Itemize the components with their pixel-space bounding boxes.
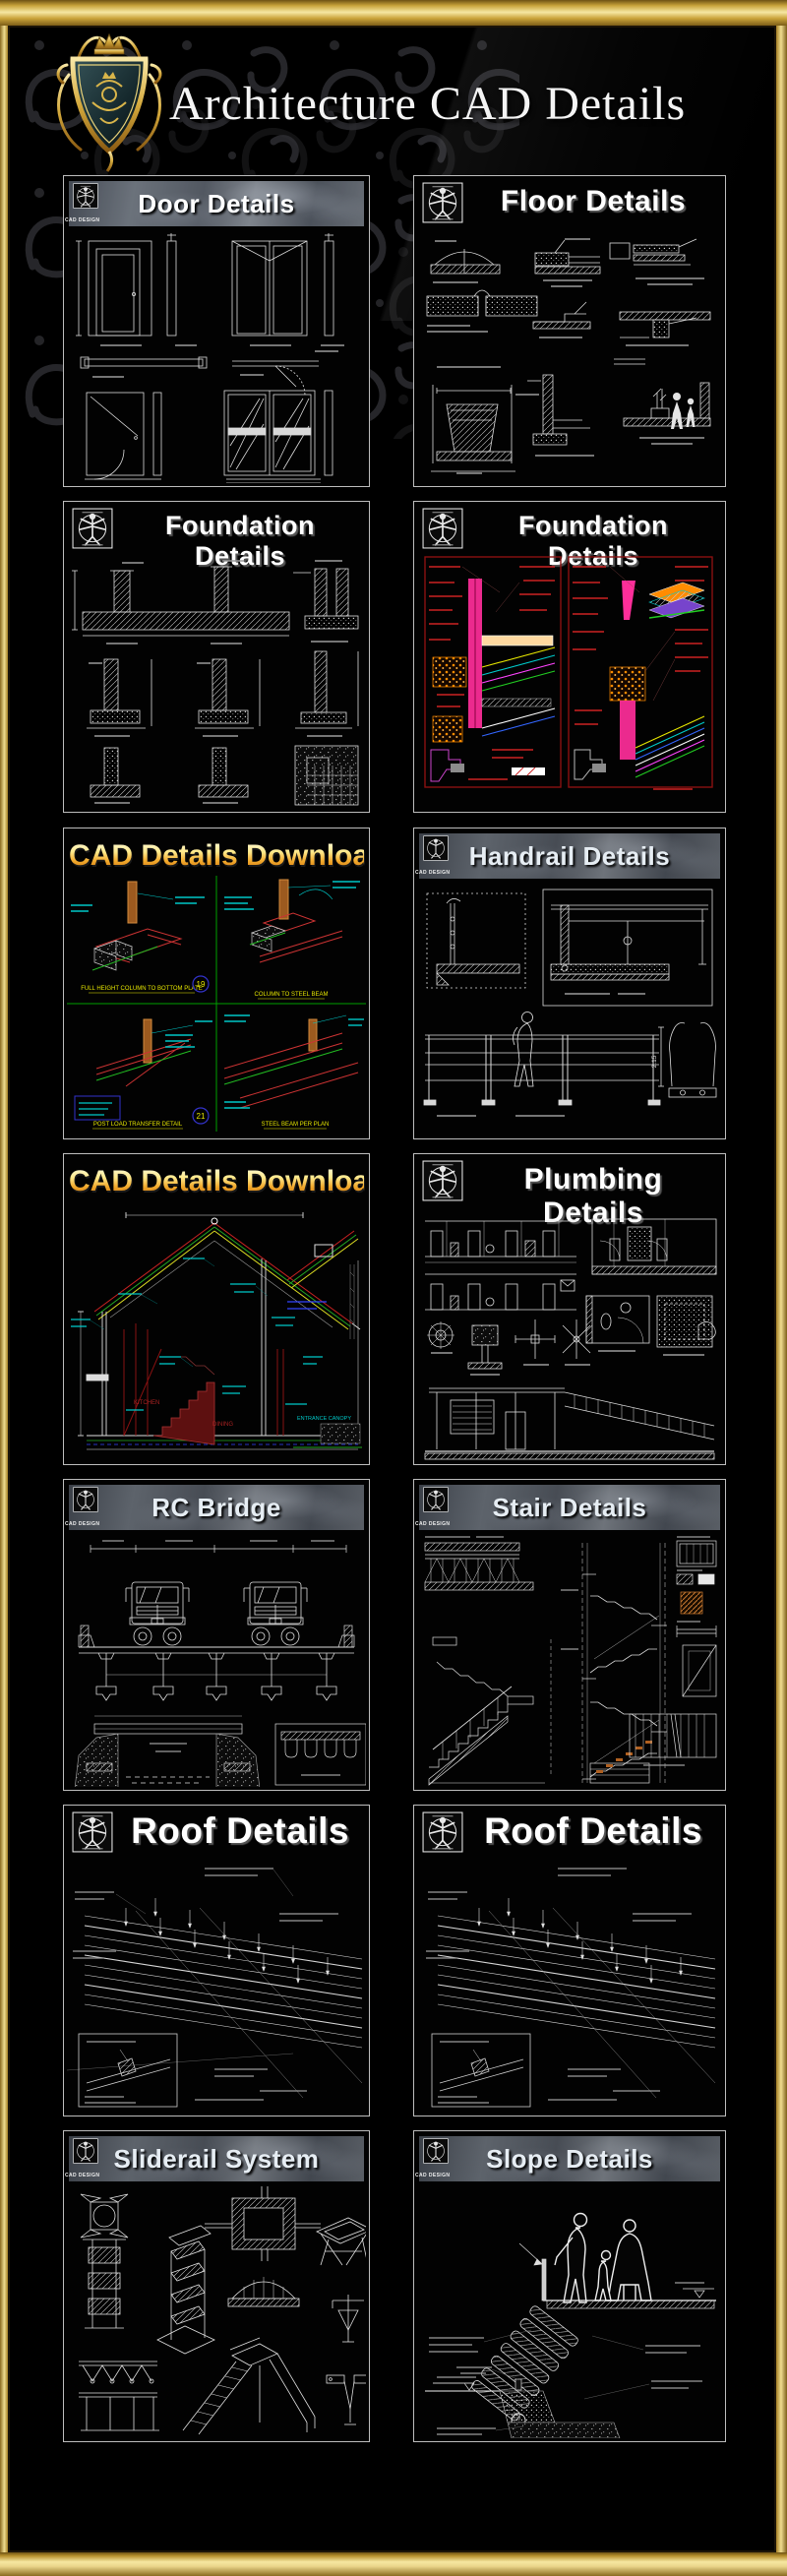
foundation-color-drawing — [417, 553, 722, 809]
panel-cad-details-download-framing: CAD Details Download — [63, 828, 370, 1139]
panel-header: CAD Details Download — [69, 1159, 364, 1204]
family-silhouette — [555, 2214, 651, 2303]
logo-caption: CAD DESIGN — [415, 2173, 460, 2178]
crest-logo-icon — [49, 28, 169, 185]
room-label-kitchen: KITCHEN — [134, 1400, 159, 1406]
panel-header: Door Details — [69, 181, 364, 226]
panel-header: Slope Details — [419, 2136, 720, 2181]
panel-handrail-details: Handrail Details CAD DESIGN — [413, 828, 726, 1139]
masthead: Architecture CAD Details — [8, 26, 776, 175]
panel-floor-details: Floor Details — [413, 175, 726, 487]
fastener-arrows — [125, 1898, 330, 1983]
cad-design-logo-icon — [73, 183, 98, 209]
cad-design-logo-icon — [72, 508, 113, 549]
panel-title: Roof Details — [470, 1810, 716, 1852]
truck-icon — [126, 1582, 189, 1645]
room-label-dining: DINING — [212, 1422, 233, 1428]
panel-title: Roof Details — [120, 1810, 360, 1852]
panel-title: CAD Details Download — [69, 1165, 364, 1198]
cad-design-logo-icon — [423, 2138, 449, 2164]
logo-caption: CAD DESIGN — [65, 1521, 110, 1527]
logo-caption: CAD DESIGN — [65, 217, 110, 223]
panel-title: Stair Details — [419, 1493, 720, 1523]
foundation-details-drawing — [67, 553, 366, 809]
panel-header: Sliderail System — [69, 2136, 364, 2181]
caption-q3: POST LOAD TRANSFER DETAIL — [93, 1122, 183, 1128]
panel-header: RC Bridge — [69, 1485, 364, 1530]
cad-design-logo-icon — [422, 508, 463, 549]
slope-details-drawing — [417, 2182, 722, 2438]
canopy-label: ENTRANCE CANOPY — [297, 1416, 351, 1422]
panel-header: Roof Details — [69, 1810, 364, 1856]
framing-details-drawing: FULL HEIGHT COLUMN TO BOTTOM PLATE COLUM… — [67, 876, 366, 1132]
plumbing-details-drawing — [417, 1205, 722, 1461]
panel-header: Plumbing Details — [419, 1159, 720, 1204]
cad-design-logo-icon — [422, 1160, 463, 1201]
frame-left — [0, 26, 8, 2552]
stair-details-drawing — [417, 1531, 722, 1787]
cad-design-logo-icon — [73, 2138, 98, 2164]
panel-header: Foundation Details — [69, 507, 364, 552]
panel-title: Floor Details — [470, 185, 716, 218]
panel-rc-bridge: RC Bridge CAD DESIGN — [63, 1479, 370, 1791]
cad-design-logo-icon — [422, 182, 463, 223]
roof-details-drawing — [67, 1857, 366, 2113]
caption-q4: STEEL BEAM PER PLAN — [262, 1122, 330, 1128]
panel-sliderail-system: Sliderail System CAD DESIGN — [63, 2130, 370, 2442]
dimension-label: 2.15 — [651, 1055, 658, 1068]
panel-header: Handrail Details — [419, 833, 720, 879]
logo-caption: CAD DESIGN — [415, 1521, 460, 1527]
detail-number-19: 19 — [197, 980, 206, 989]
door-details-drawing — [67, 227, 366, 483]
logo-caption: CAD DESIGN — [415, 870, 460, 876]
panel-plumbing-details: Plumbing Details — [413, 1153, 726, 1465]
cad-design-logo-icon — [423, 835, 449, 861]
panel-title: Sliderail System — [69, 2144, 364, 2175]
cad-design-logo-icon — [73, 1487, 98, 1512]
caption-q1: FULL HEIGHT COLUMN TO BOTTOM PLATE — [81, 986, 203, 992]
panel-header: Floor Details — [419, 181, 720, 226]
roof-details-drawing — [417, 1857, 722, 2113]
panel-roof-details-right: Roof Details — [413, 1805, 726, 2116]
panel-title: Slope Details — [419, 2144, 720, 2175]
panel-header: Roof Details — [419, 1810, 720, 1856]
panel-slope-details: Slope Details CAD DESIGN — [413, 2130, 726, 2442]
cad-design-logo-icon — [422, 1811, 463, 1853]
cyan-annotation-text-lines — [71, 1258, 323, 1410]
person-figure — [514, 1012, 533, 1087]
panel-header: CAD Details Download — [69, 833, 364, 879]
fastener-arrows — [478, 1898, 683, 1983]
panel-stair-details: Stair Details CAD DESIGN — [413, 1479, 726, 1791]
panel-header: Foundation Details — [419, 507, 720, 552]
page-title: Architecture CAD Details — [169, 77, 686, 131]
panel-title: RC Bridge — [69, 1493, 364, 1523]
caption-q2: COLUMN TO STEEL BEAM — [255, 992, 329, 998]
cad-design-logo-icon — [72, 1811, 113, 1853]
panel-title: CAD Details Download — [69, 839, 364, 873]
panel-roof-details-left: Roof Details — [63, 1805, 370, 2116]
logo-caption: CAD DESIGN — [65, 2173, 110, 2178]
rc-bridge-drawing — [67, 1531, 366, 1787]
sliderail-drawing — [67, 2182, 366, 2438]
panel-foundation-details-right: Foundation Details — [413, 501, 726, 813]
frame-bottom — [0, 2552, 787, 2576]
panel-header: Stair Details — [419, 1485, 720, 1530]
panel-cad-details-download-house: CAD Details Download — [63, 1153, 370, 1465]
panel-foundation-details-left: Foundation Details — [63, 501, 370, 813]
handrail-details-drawing: 2.15 — [417, 880, 722, 1135]
panel-door-details: Door Details CAD DESIGN — [63, 175, 370, 487]
frame-right — [776, 26, 787, 2552]
house-section-drawing: KITCHEN DINING ENTRANCE CANOPY — [67, 1201, 366, 1457]
frame-top — [0, 0, 787, 26]
panel-title: Handrail Details — [419, 841, 720, 872]
floor-details-drawing — [417, 227, 722, 483]
poster: Architecture CAD Details Door Details CA… — [0, 0, 787, 2576]
truck-icon — [244, 1582, 307, 1645]
detail-number-21: 21 — [197, 1112, 206, 1121]
panel-title: Door Details — [69, 189, 364, 219]
cad-design-logo-icon — [423, 1487, 449, 1512]
